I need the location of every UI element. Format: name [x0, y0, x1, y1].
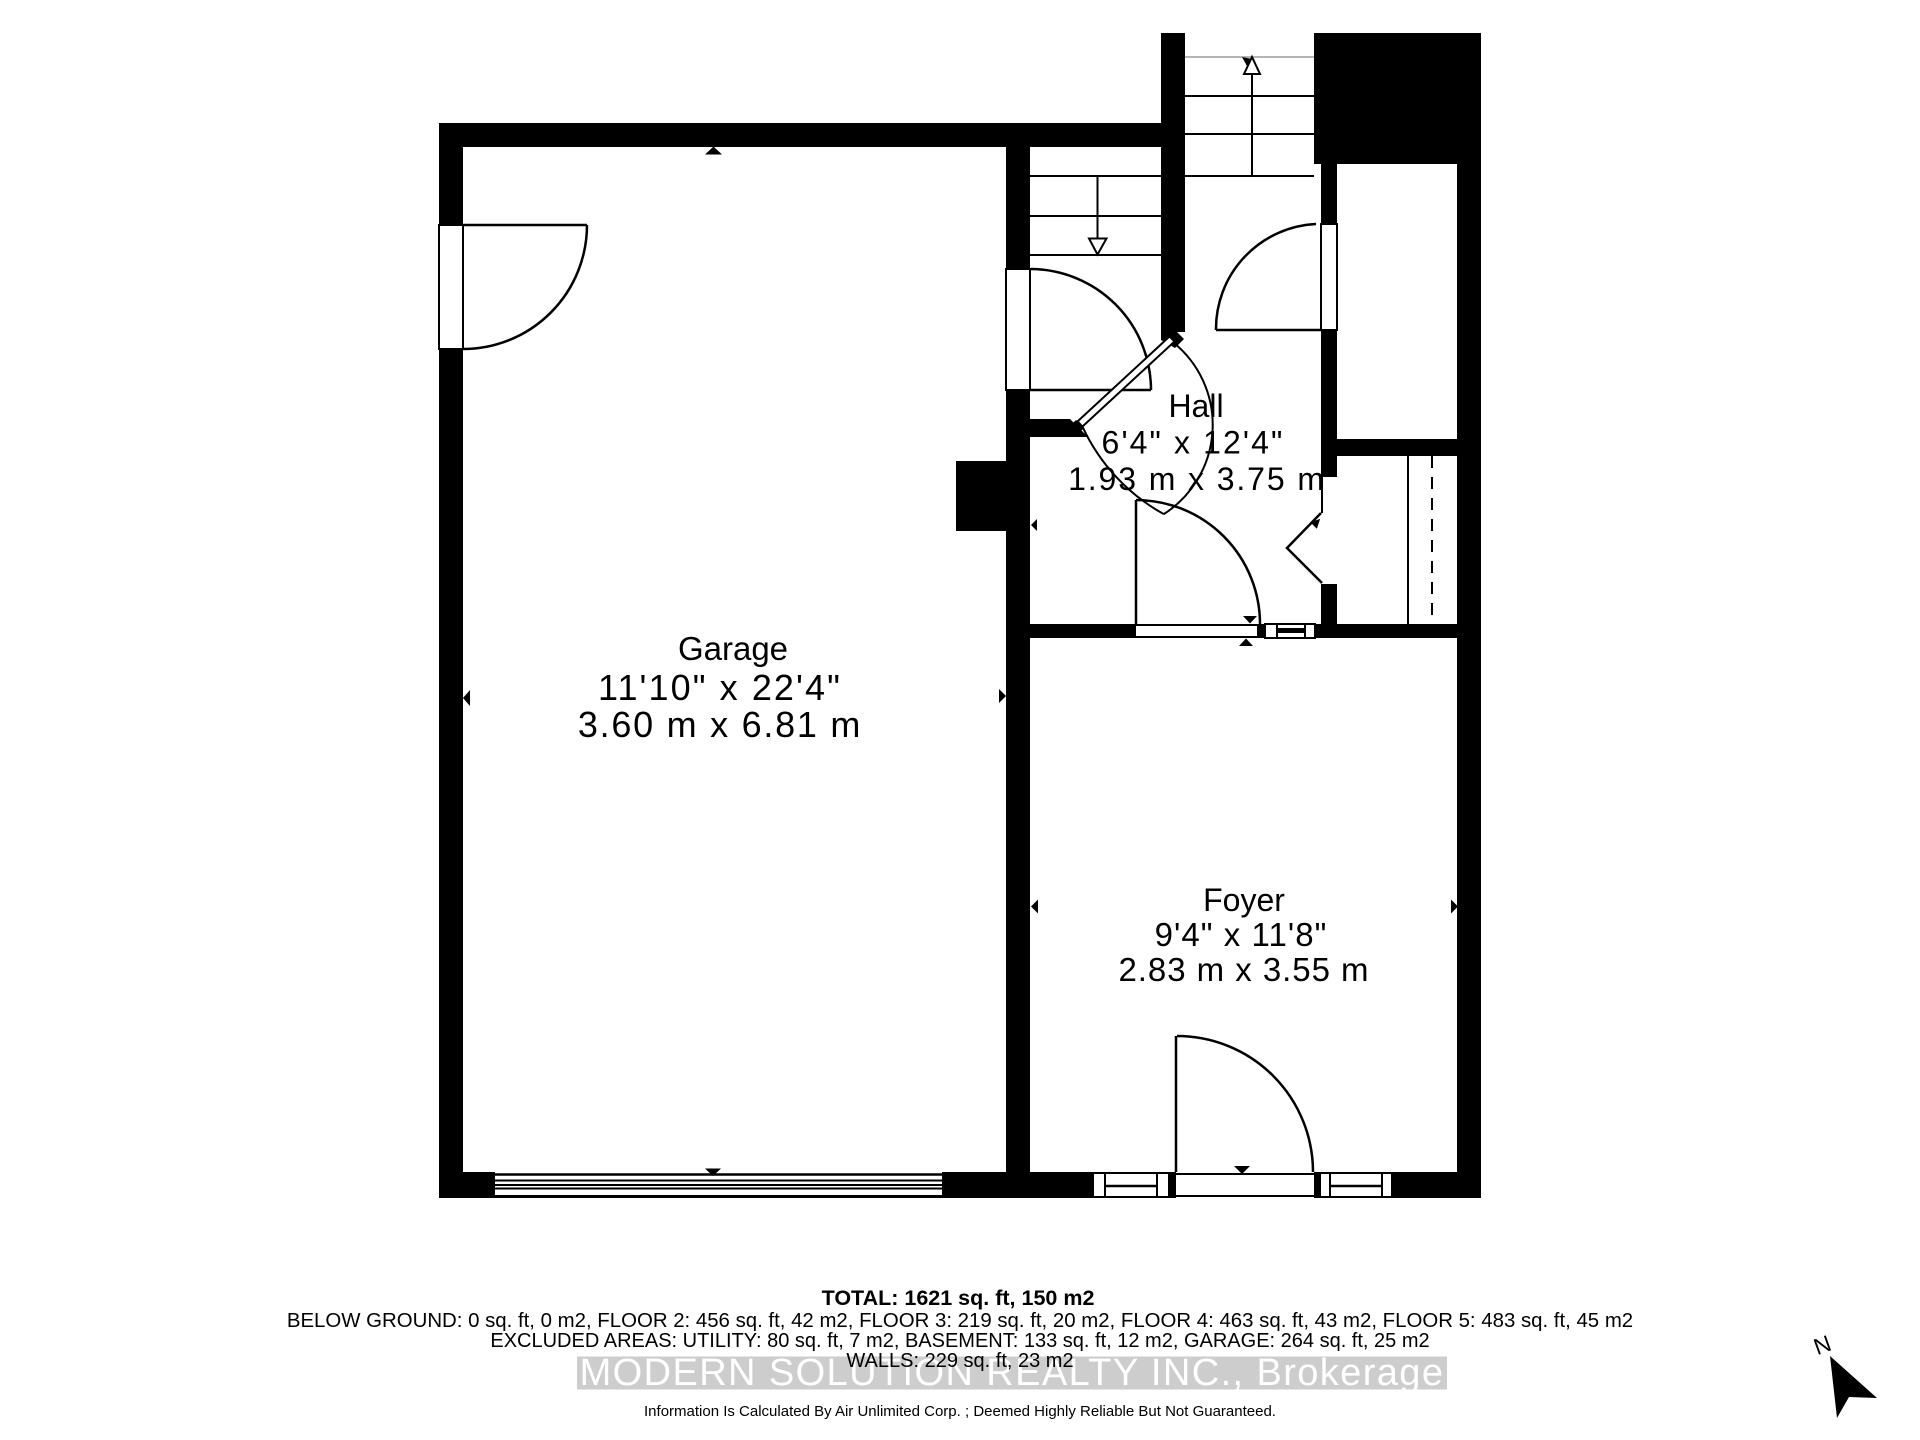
svg-text:TOTAL: 1621 sq. ft, 150 m2: TOTAL: 1621 sq. ft, 150 m2 [822, 1286, 1095, 1310]
svg-text:EXCLUDED AREAS: UTILITY: 80 sq: EXCLUDED AREAS: UTILITY: 80 sq. ft, 7 m2… [490, 1330, 1429, 1352]
svg-text:1.93 m x 3.75 m: 1.93 m x 3.75 m [1068, 461, 1326, 497]
svg-text:BELOW GROUND: 0 sq. ft, 0 m2,: BELOW GROUND: 0 sq. ft, 0 m2, FLOOR 2: 4… [287, 1310, 1633, 1332]
svg-text:Information Is Calculated By A: Information Is Calculated By Air Unlimit… [644, 1403, 1276, 1420]
svg-text:11'10" x 22'4": 11'10" x 22'4" [598, 667, 842, 708]
svg-text:Foyer: Foyer [1203, 882, 1285, 918]
svg-text:Hall: Hall [1168, 388, 1223, 424]
svg-text:Garage: Garage [678, 630, 788, 667]
svg-text:2.83 m x 3.55 m: 2.83 m x 3.55 m [1118, 951, 1369, 988]
svg-text:WALLS: 229 sq. ft, 23 m2: WALLS: 229 sq. ft, 23 m2 [846, 1350, 1073, 1372]
svg-text:9'4" x 11'8": 9'4" x 11'8" [1155, 916, 1328, 953]
svg-text:3.60 m x 6.81 m: 3.60 m x 6.81 m [578, 704, 862, 745]
svg-text:6'4" x 12'4": 6'4" x 12'4" [1102, 425, 1285, 461]
